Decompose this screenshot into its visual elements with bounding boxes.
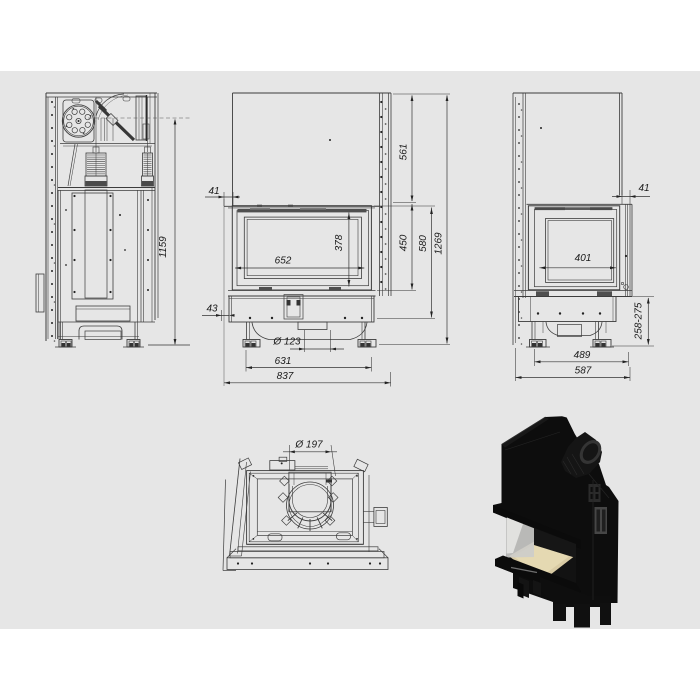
svg-text:561: 561 — [399, 144, 410, 161]
svg-text:489: 489 — [574, 350, 591, 361]
svg-text:258-275: 258-275 — [634, 302, 645, 340]
svg-text:631: 631 — [275, 356, 292, 367]
svg-text:Ø 197: Ø 197 — [294, 439, 323, 450]
svg-text:1269: 1269 — [434, 232, 445, 255]
svg-text:43: 43 — [206, 304, 218, 315]
svg-text:41: 41 — [208, 186, 219, 197]
svg-text:Ø 123: Ø 123 — [272, 337, 301, 348]
svg-text:587: 587 — [575, 366, 592, 377]
svg-text:378: 378 — [334, 234, 345, 251]
svg-text:401: 401 — [575, 253, 592, 264]
svg-text:450: 450 — [399, 234, 410, 251]
svg-text:580: 580 — [418, 235, 429, 252]
svg-text:41: 41 — [638, 183, 649, 194]
svg-text:1159: 1159 — [158, 236, 169, 258]
svg-text:652: 652 — [275, 256, 292, 267]
svg-text:837: 837 — [277, 371, 294, 382]
